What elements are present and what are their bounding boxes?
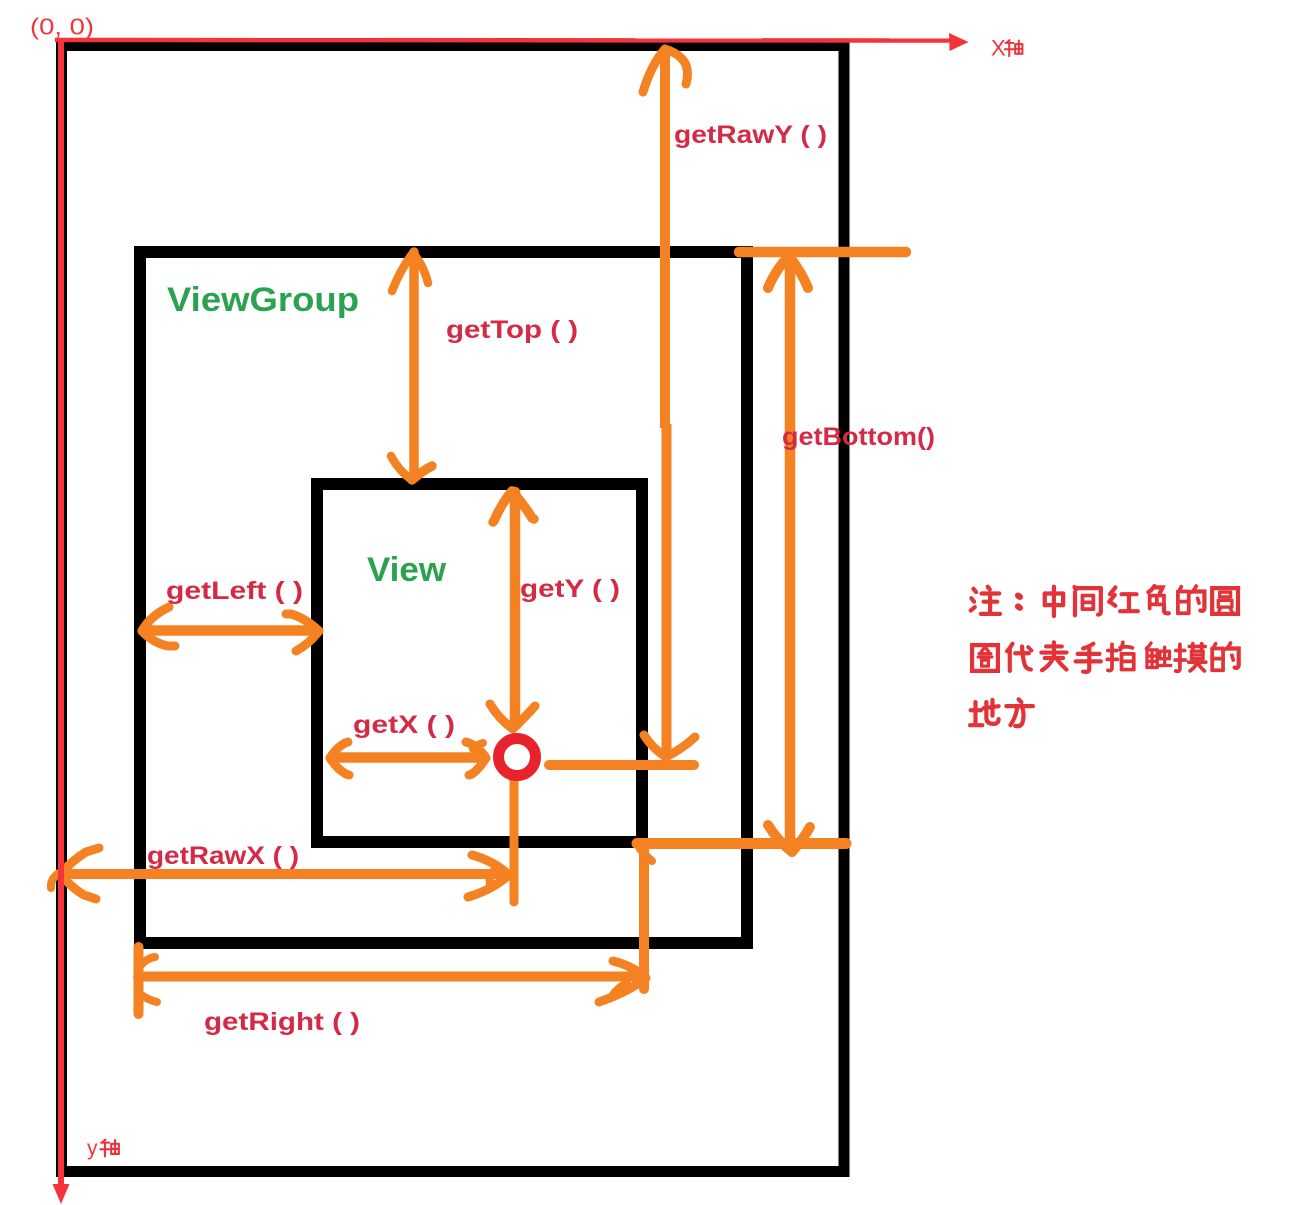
svg-text:X: X <box>991 36 1006 61</box>
svg-text:ViewGroup: ViewGroup <box>167 281 359 319</box>
svg-text:(0, 0): (0, 0) <box>30 14 94 40</box>
svg-text:y: y <box>87 1137 98 1160</box>
svg-text:View: View <box>367 551 447 589</box>
svg-text:getRawX ( ): getRawX ( ) <box>147 842 299 870</box>
svg-text:getRight ( ): getRight ( ) <box>204 1008 360 1036</box>
svg-text:getBottom(): getBottom() <box>782 423 935 451</box>
svg-text:getY ( ): getY ( ) <box>520 575 620 603</box>
svg-text:getRawY ( ): getRawY ( ) <box>674 121 827 149</box>
svg-text:getX ( ): getX ( ) <box>353 711 455 739</box>
svg-text:getTop ( ): getTop ( ) <box>446 316 578 344</box>
svg-text:getLeft ( ): getLeft ( ) <box>166 577 303 605</box>
